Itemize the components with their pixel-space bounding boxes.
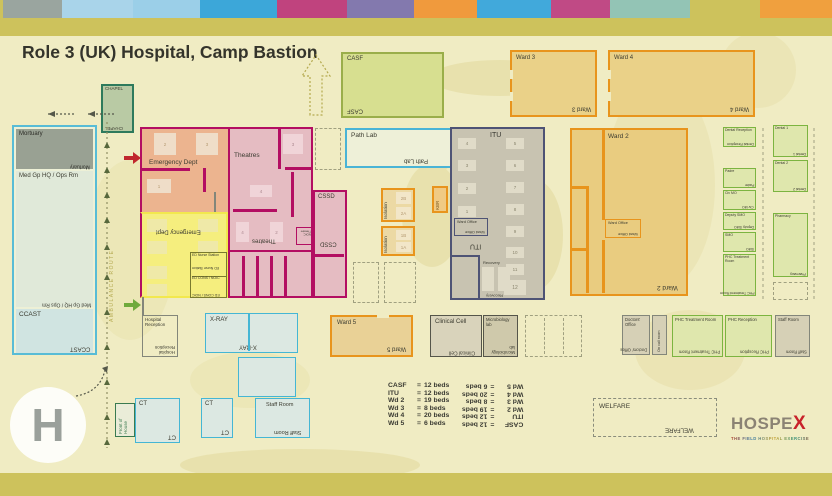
- padre-label: Padre: [725, 170, 734, 174]
- room-ccast: CCAST CCAST: [16, 309, 93, 353]
- dashed-plot: [353, 262, 379, 303]
- itu-bed-4: 4: [458, 138, 476, 149]
- room-front-of-house: Front of House: [115, 403, 135, 437]
- pharmacy-label: Pharmacy: [775, 215, 791, 219]
- ward-office-label-mirrored: Ward Office: [465, 230, 485, 234]
- ed-bay: [147, 241, 167, 254]
- door-gap: [377, 315, 389, 318]
- mortuary-label: Mortuary: [19, 131, 43, 138]
- hospex-x-icon: X: [793, 413, 806, 434]
- theatres-label-mirrored: Theatres: [252, 237, 276, 244]
- recovery-bed: [482, 267, 494, 291]
- emergency-dept-label-mirrored: Emergency Dept: [156, 228, 201, 235]
- room-microbiology: Microbiology lab Microbiology lab: [483, 315, 518, 357]
- wall: [203, 168, 206, 192]
- ward-2-label-mirrored: Ward 2: [657, 284, 678, 291]
- dental-1-label: Dental 1: [775, 127, 788, 131]
- staff-room-label-mirrored: Staff Room: [786, 349, 807, 354]
- room-casf: CASF CASF: [341, 52, 444, 118]
- wall: [284, 256, 287, 298]
- ward-4-label: Ward 4: [614, 55, 633, 62]
- cssd-label: CSSD: [318, 194, 335, 201]
- wall: [270, 256, 273, 298]
- isolation-label: Isolation: [384, 191, 389, 219]
- ed-cons-noic-label-mirrored: ED CONS / NOIC: [192, 292, 220, 296]
- microbiology-label-mirrored: Microbiology lab: [485, 345, 515, 354]
- room-civ-mo: Civ MO Civ MO: [723, 190, 756, 210]
- casf-label-mirrored: CASF: [347, 107, 363, 114]
- hospital-reception-label: Hospital Reception: [145, 318, 175, 328]
- itu-bed-9: 9: [506, 226, 524, 237]
- path-lab-label: Path Lab: [351, 132, 377, 139]
- wall: [285, 167, 313, 170]
- room-kbr: KBR: [432, 186, 448, 213]
- hospex-wordmark: HOSPE: [731, 414, 793, 433]
- wall: [602, 130, 605, 220]
- dental-1-label-mirrored: Dental 1: [793, 151, 806, 155]
- room-phc-treatment-2: PHC Treatment Room PHC Treatment Room: [672, 315, 723, 357]
- ward-2-label: Ward 2: [608, 133, 629, 140]
- phc-treatment-label: PHC Treatment Room: [675, 318, 716, 323]
- door-gap: [608, 70, 611, 79]
- ed-bay: [198, 219, 218, 232]
- wall: [248, 314, 250, 351]
- wall: [242, 256, 245, 298]
- iso-room-2a: 2A: [396, 207, 411, 219]
- ed-bay-1: 1: [147, 179, 171, 193]
- dental-reception-label: Dental Reception: [725, 129, 755, 133]
- emergency-dept-label: Emergency Dept: [149, 159, 197, 166]
- door-gap: [608, 92, 611, 101]
- phc-treatment-label-mirrored: PHC Treatment Room: [679, 349, 720, 354]
- room-emergency-dept-minors: Emergency Dept ED Nurse Station ED Nurse…: [140, 212, 228, 298]
- room-phc-reception: PHC Reception PHC Reception: [725, 315, 772, 357]
- theatre-room-3: 3: [283, 134, 303, 154]
- ward-4-label-mirrored: Ward 4: [730, 105, 749, 112]
- civ-mo-label: Civ MO: [725, 192, 737, 196]
- clinical-cell-label: Clinical Cell: [435, 319, 466, 326]
- pharmacy-label-mirrored: Pharmacy: [790, 271, 806, 275]
- phc-reception-label-mirrored: PHC Reception: [740, 349, 769, 354]
- ct-label-mirrored: CT: [221, 428, 229, 435]
- itu-bed-5: 5: [506, 138, 524, 149]
- recovery-label: Recovery: [483, 261, 500, 265]
- wall: [602, 240, 605, 293]
- theatres-stalls: [228, 252, 313, 298]
- itu-bed-3: 3: [458, 160, 476, 171]
- itu-bed-8: 8: [506, 204, 524, 215]
- wall: [291, 172, 294, 217]
- top-color-strip: [0, 0, 832, 18]
- med-gp-label-mirrored: Med Gp HQ / Ops Rm: [42, 301, 91, 307]
- ed-nurse-station-label-mirrored: ED Nurse Station: [192, 265, 219, 269]
- kbr-label: KBR: [436, 190, 441, 210]
- theatre-room-4: 4: [250, 185, 272, 197]
- wall: [142, 297, 144, 315]
- ward-3-label: Ward 3: [516, 55, 535, 62]
- top-olive-band: [0, 18, 832, 36]
- welfare-label-mirrored: WELFARE: [665, 426, 694, 433]
- room-noic-theatre: NOIC Theatre: [296, 227, 312, 245]
- microbiology-label: Microbiology lab: [486, 318, 516, 327]
- wall: [572, 248, 587, 251]
- ed-bay: [147, 266, 167, 279]
- top-color-strip-segment: [277, 0, 347, 18]
- itu-bed-7: 7: [506, 182, 524, 193]
- cssd-label-mirrored: CSSD: [320, 240, 337, 247]
- recovery-label-mirrored: Recovery: [486, 293, 503, 297]
- room-welfare: WELFARE WELFARE: [593, 398, 717, 437]
- room-on-call: On call room: [652, 315, 667, 355]
- doctors-office-label-mirrored: Doctors' Office: [620, 347, 647, 352]
- room-ward-5: Ward 5 Ward 5: [330, 315, 413, 357]
- staff-room-label-mirrored: Staff Room: [274, 429, 301, 435]
- ambulance-route-label: AMBULANCE ROUTE: [110, 238, 116, 322]
- wall: [586, 186, 589, 293]
- itu-bed-6: 6: [506, 160, 524, 171]
- phc-treatment-label-mirrored: PHC Treatment Room: [720, 290, 754, 294]
- dashed-plot: [315, 128, 341, 170]
- room-theatres: Theatres 3 4 4 2 Theatres NOIC Theatre: [228, 127, 313, 252]
- door-gap: [510, 92, 513, 101]
- deputy-smo-label-mirrored: Deputy SMO: [734, 224, 754, 228]
- iso-room-1a: 1A: [396, 242, 411, 252]
- itu-ward-office: Ward Office Ward Office: [454, 218, 488, 236]
- itu-bed-1: 1: [458, 206, 476, 217]
- mortuary-label-mirrored: Mortuary: [70, 163, 90, 169]
- hospex-logo: HOSPEX THE FIELD HOSPITAL EXERCISE: [731, 413, 817, 441]
- dental-2-label: Dental 2: [775, 162, 788, 166]
- itu-label: ITU: [490, 132, 501, 140]
- dashed-divider: [544, 318, 545, 354]
- recovery-bed: [498, 267, 510, 291]
- room-staff-room: Staff Room Staff Room: [255, 398, 310, 438]
- wall: [233, 209, 277, 212]
- room-phc-treatment: PHC Treatment Room PHC Treatment Room: [723, 254, 756, 296]
- ward-2-office: Ward Office Ward Office: [605, 219, 641, 238]
- ct-label: CT: [139, 401, 147, 408]
- dashed-plot: [773, 282, 808, 300]
- top-color-strip-segment: [690, 0, 760, 18]
- room-isolation-1: Isolation 1B 1A: [381, 226, 415, 256]
- room-dental-reception: Dental Reception Dental Reception: [723, 127, 756, 147]
- room-ward-4: Ward 4 Ward 4: [608, 50, 755, 117]
- ward-5-label-mirrored: Ward 5: [387, 345, 406, 352]
- room-dental-2: Dental 2 Dental 2: [773, 160, 808, 192]
- dashed-plot: [384, 262, 416, 303]
- ct-label-mirrored: CT: [168, 433, 176, 440]
- room-ward-3: Ward 3 Ward 3: [510, 50, 597, 117]
- top-color-strip-segment: [347, 0, 414, 18]
- hospital-reception-label-mirrored: Hospital Reception: [145, 344, 175, 354]
- wall: [256, 256, 259, 298]
- isolation-label: Isolation: [384, 229, 389, 253]
- top-color-strip-segment: [760, 0, 832, 18]
- helipad: H: [10, 387, 86, 463]
- padre-label-mirrored: Padre: [745, 182, 754, 186]
- top-color-strip-segment: [3, 0, 62, 18]
- smo-label: SMO: [725, 234, 733, 238]
- ed-offices: ED Nurse Station ED Nurse Station ED CON…: [190, 252, 227, 298]
- room-clinical-cell: Clinical Cell Clinical Cell: [430, 315, 482, 357]
- ct-label: CT: [205, 401, 213, 408]
- bed-legend: CASF=12 beds ITU=12 beds Wd 2=19 beds Wd…: [388, 382, 449, 428]
- top-color-strip-segment: [414, 0, 477, 18]
- top-color-strip-segment: [200, 0, 277, 18]
- casf-label: CASF: [347, 56, 363, 63]
- theatre-bay-4: 4: [236, 222, 249, 242]
- top-color-strip-segment: [62, 0, 133, 18]
- top-color-strip-segment: [551, 0, 610, 18]
- welfare-label: WELFARE: [599, 403, 630, 410]
- chapel-label: CHAPEL: [105, 87, 123, 92]
- hospital-site-plan: Role 3 (UK) Hospital, Camp Bastion CHAPE…: [0, 0, 832, 496]
- deputy-smo-label: Deputy SMO: [725, 214, 745, 218]
- hospex-subtitle: THE FIELD HOSPITAL EXERCISE: [731, 436, 817, 441]
- ward-office-label: Ward Office: [457, 220, 477, 224]
- theatres-label: Theatres: [234, 152, 260, 159]
- page-title: Role 3 (UK) Hospital, Camp Bastion: [22, 42, 318, 63]
- helipad-h: H: [31, 398, 64, 452]
- doctors-office-label: Doctors' Office: [625, 318, 648, 327]
- hq-block: Mortuary Mortuary Med Gp HQ / Ops Rm Med…: [12, 125, 97, 355]
- ward-office-label: Ward Office: [608, 221, 628, 225]
- itu-annex: [450, 255, 480, 300]
- smo-label-mirrored: SMO: [746, 246, 754, 250]
- dental-reception-label-mirrored: Dental Reception: [727, 141, 754, 145]
- room-mortuary: Mortuary Mortuary: [16, 129, 93, 169]
- room-pharmacy: Pharmacy Pharmacy: [773, 213, 808, 277]
- ed-nurse-station-label: ED Nurse Station: [192, 254, 219, 258]
- wall: [572, 186, 587, 189]
- itu-bed-2: 2: [458, 183, 476, 194]
- civ-mo-label-mirrored: Civ MO: [742, 204, 754, 208]
- room-hospital-reception: Hospital Reception Hospital Reception: [142, 315, 178, 357]
- top-color-strip-segment: [610, 0, 690, 18]
- room-deputy-smo: Deputy SMO Deputy SMO: [723, 212, 756, 230]
- wall: [214, 192, 216, 212]
- itu-label-mirrored: ITU: [470, 242, 481, 250]
- room-isolation-2: Isolation 2B 2A: [381, 188, 415, 222]
- path-lab-label-mirrored: Path Lab: [404, 157, 428, 164]
- room-xray: X-RAY X-RAY: [205, 313, 298, 353]
- staff-room-label: Staff Room: [778, 318, 799, 323]
- room-dental-1: Dental 1 Dental 1: [773, 125, 808, 157]
- room-staff-room-right: Staff Room Staff Room: [775, 315, 810, 357]
- top-color-strip-segment: [133, 0, 200, 18]
- wall: [315, 254, 344, 257]
- chapel-label-mirrored: CHAPEL: [105, 125, 123, 130]
- ccast-label: CCAST: [19, 311, 41, 318]
- room-itu: ITU 4 3 2 1 5 6 7 8 9 10 11 12 Ward Offi…: [450, 127, 545, 300]
- wall: [140, 168, 190, 171]
- room-med-gp-hq: Med Gp HQ / Ops Rm Med Gp HQ / Ops Rm: [16, 171, 93, 307]
- room-path-lab: Path Lab Path Lab: [345, 128, 452, 168]
- ccast-label-mirrored: CCAST: [70, 345, 90, 352]
- room-ct-1: CT CT: [135, 398, 180, 443]
- room-smo: SMO SMO: [723, 232, 756, 252]
- ed-bay-2: 2: [154, 133, 176, 155]
- room-ward-2: Ward 2 Ward Office Ward Office Ward 2: [570, 128, 688, 296]
- room-padre: Padre Padre: [723, 168, 756, 188]
- ward-3-label-mirrored: Ward 3: [572, 105, 591, 112]
- room-doctors-office: Doctors' Office Doctors' Office: [622, 315, 650, 355]
- dashed-plot: [525, 315, 582, 357]
- xray-annex: [238, 357, 296, 397]
- room-chapel: CHAPEL CHAPEL: [101, 84, 134, 133]
- room-ct-2: CT CT: [201, 398, 233, 438]
- bed-legend-mirrored: CASF=12 beds ITU=12 beds Wd 2=19 beds Wd…: [462, 382, 523, 428]
- room-cssd: CSSD CSSD: [313, 190, 347, 298]
- med-gp-label: Med Gp HQ / Ops Rm: [19, 173, 78, 180]
- clinical-cell-label-mirrored: Clinical Cell: [449, 349, 475, 355]
- iso-room-2b: 2B: [396, 192, 411, 204]
- bottom-olive-band: [0, 473, 832, 496]
- iso-room-1b: 1B: [396, 230, 411, 240]
- dashed-divider: [563, 318, 564, 354]
- ed-bay: [147, 284, 167, 296]
- phc-reception-label: PHC Reception: [728, 318, 757, 323]
- phc-treatment-label: PHC Treatment Room: [725, 256, 753, 264]
- ed-bay-3: 3: [196, 133, 218, 155]
- ward-office-label-mirrored: Ward Office: [618, 232, 638, 236]
- staff-room-label: Staff Room: [266, 402, 293, 408]
- xray-label: X-RAY: [210, 317, 228, 324]
- door-gap: [510, 70, 513, 79]
- itu-bed-10: 10: [506, 247, 524, 258]
- ed-cons-noic-label: ED CONS / NOIC: [192, 276, 226, 281]
- on-call-room-label: On call room: [657, 318, 661, 352]
- front-of-house-label: Front of House: [119, 406, 131, 434]
- dental-2-label-mirrored: Dental 2: [793, 186, 806, 190]
- noic-theatre-label-mirrored: NOIC Theatre: [298, 229, 311, 236]
- top-color-strip-segment: [477, 0, 551, 18]
- wall: [278, 129, 281, 169]
- ward-5-label: Ward 5: [337, 320, 356, 327]
